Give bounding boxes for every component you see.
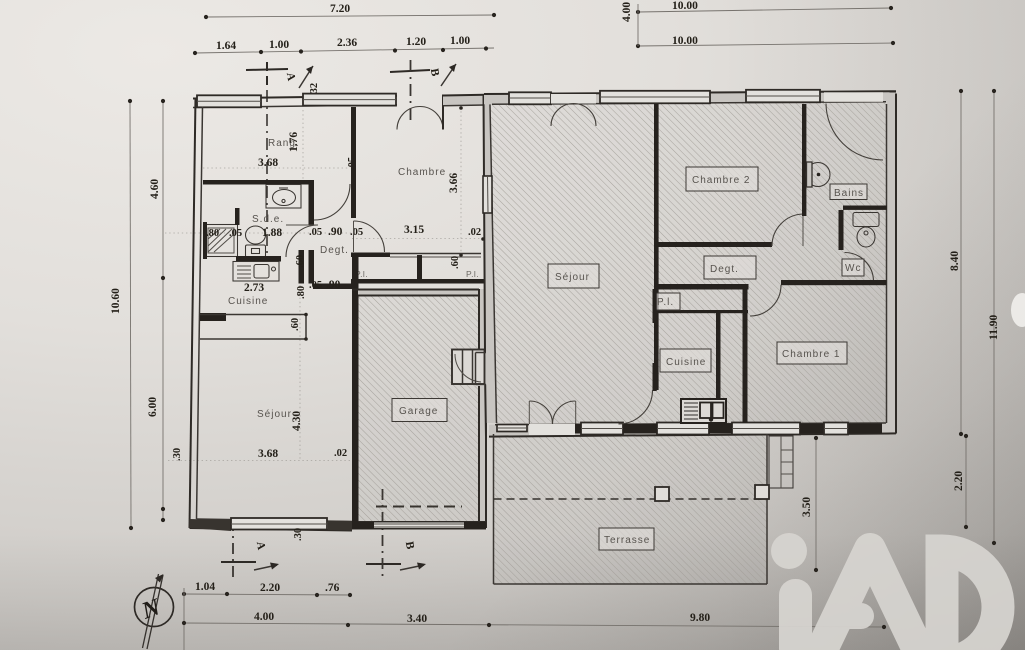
svg-text:.80: .80 <box>206 228 219 239</box>
svg-text:6.00: 6.00 <box>147 397 159 417</box>
svg-text:3.50: 3.50 <box>801 497 813 517</box>
svg-text:.02: .02 <box>334 448 347 459</box>
svg-text:Séjour: Séjour <box>555 272 590 283</box>
svg-text:.05: .05 <box>309 227 322 238</box>
svg-text:3.68: 3.68 <box>258 157 278 169</box>
svg-text:.60: .60 <box>450 256 461 269</box>
svg-text:10.60: 10.60 <box>110 288 122 314</box>
svg-text:Cuisine: Cuisine <box>228 296 268 307</box>
svg-text:Wc: Wc <box>845 263 861 274</box>
svg-text:4.00: 4.00 <box>254 611 274 623</box>
svg-text:S.d.e.: S.d.e. <box>252 214 284 225</box>
svg-text:.30: .30 <box>172 448 183 461</box>
svg-text:1.88: 1.88 <box>262 227 282 239</box>
svg-text:Bains: Bains <box>834 188 864 199</box>
svg-text:2.73: 2.73 <box>244 282 264 294</box>
svg-text:.90: .90 <box>328 226 343 238</box>
svg-text:.05: .05 <box>229 228 242 239</box>
svg-text:4.30: 4.30 <box>291 411 303 431</box>
svg-text:A: A <box>254 541 267 552</box>
svg-text:3.40: 3.40 <box>407 613 427 625</box>
svg-text:1.64: 1.64 <box>216 40 236 52</box>
svg-text:.05: .05 <box>309 280 322 291</box>
svg-text:4.00: 4.00 <box>621 2 633 22</box>
svg-text:.60: .60 <box>290 318 301 331</box>
svg-text:.60: .60 <box>295 255 306 268</box>
svg-text:8.40: 8.40 <box>949 251 961 271</box>
svg-text:1.76: 1.76 <box>288 132 300 152</box>
svg-text:B: B <box>428 68 441 78</box>
svg-text:Garage: Garage <box>399 406 438 417</box>
svg-text:Chambre 1: Chambre 1 <box>782 349 840 360</box>
svg-text:3.15: 3.15 <box>404 224 424 236</box>
svg-text:P.l.: P.l. <box>657 297 674 308</box>
svg-text:.80: .80 <box>296 286 307 299</box>
svg-text:2.20: 2.20 <box>953 471 965 491</box>
svg-text:3.66: 3.66 <box>448 173 460 193</box>
svg-text:.02: .02 <box>468 227 481 238</box>
svg-text:.05: .05 <box>350 227 363 238</box>
svg-text:Degt.: Degt. <box>320 245 349 256</box>
svg-text:3.68: 3.68 <box>258 448 278 460</box>
svg-text:2.36: 2.36 <box>337 37 357 49</box>
svg-text:11.90: 11.90 <box>988 315 1000 340</box>
svg-text:4.60: 4.60 <box>149 179 161 199</box>
svg-text:10.00: 10.00 <box>672 0 698 12</box>
svg-text:Chambre: Chambre <box>398 167 446 178</box>
svg-text:.30: .30 <box>293 528 304 541</box>
svg-text:P.l.: P.l. <box>466 269 479 279</box>
svg-text:Chambre 2: Chambre 2 <box>692 175 750 186</box>
svg-text:Cuisine: Cuisine <box>666 357 706 368</box>
svg-text:.90: .90 <box>326 279 341 291</box>
svg-text:1.00: 1.00 <box>269 39 289 51</box>
svg-text:Degt.: Degt. <box>710 264 739 275</box>
svg-text:A: A <box>284 72 297 83</box>
svg-text:7.20: 7.20 <box>330 3 350 15</box>
svg-text:N: N <box>138 594 166 625</box>
svg-text:Séjour: Séjour <box>257 409 292 420</box>
svg-text:9.80: 9.80 <box>690 612 710 624</box>
svg-text:.76: .76 <box>325 582 340 594</box>
svg-text:1.00: 1.00 <box>450 35 470 47</box>
svg-text:1.20: 1.20 <box>406 36 426 48</box>
svg-text:2.20: 2.20 <box>260 582 280 594</box>
svg-text:Terrasse: Terrasse <box>604 535 650 546</box>
svg-text:B: B <box>403 541 416 551</box>
svg-text:1.04: 1.04 <box>195 581 215 593</box>
svg-text:10.00: 10.00 <box>672 35 698 47</box>
